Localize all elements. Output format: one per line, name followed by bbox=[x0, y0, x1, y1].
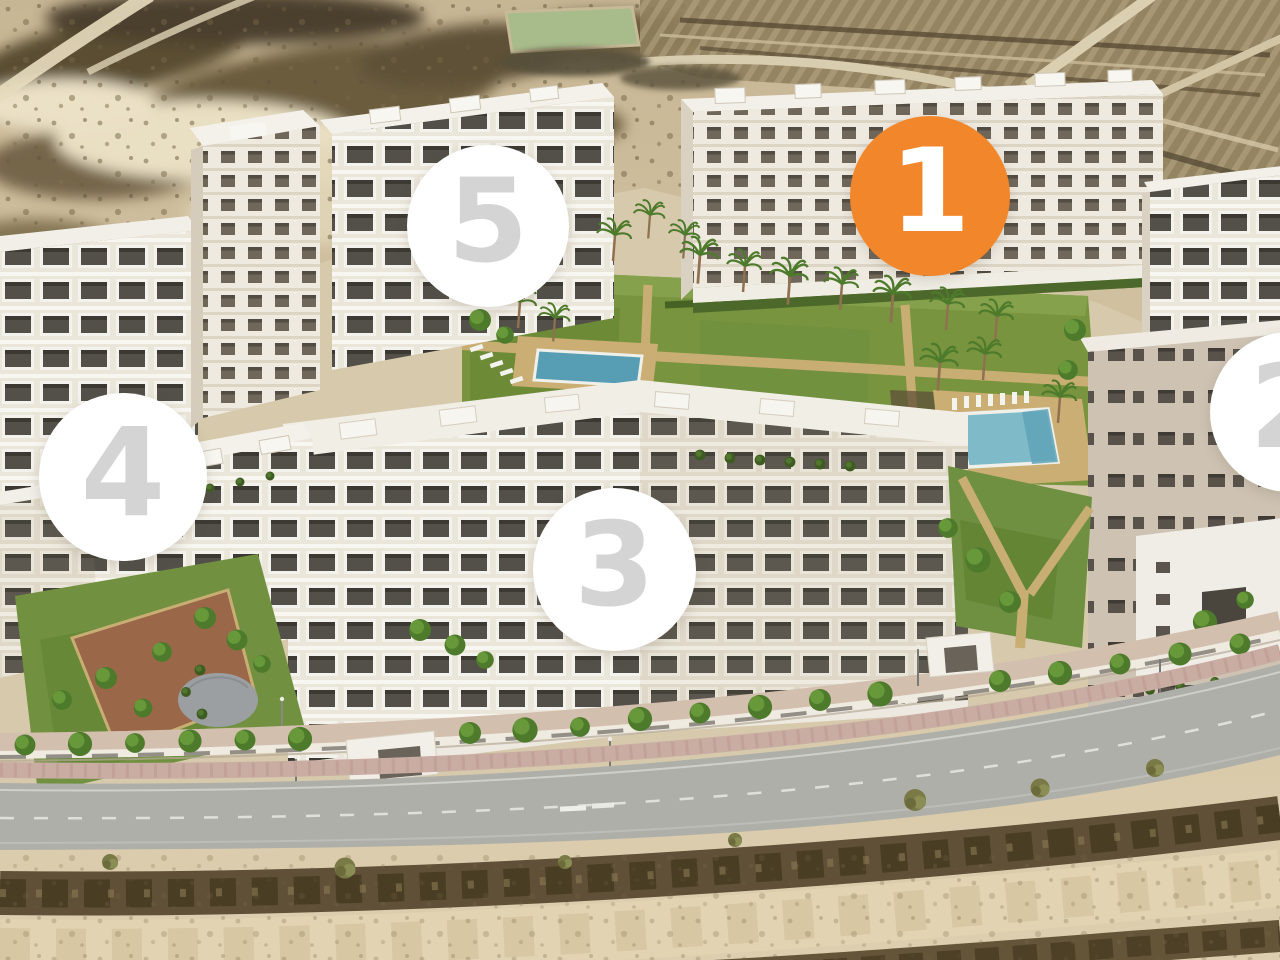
building-marker-2-label: 2 bbox=[1250, 350, 1280, 466]
building-marker-3[interactable]: 3 bbox=[533, 488, 696, 651]
building-marker-4-label: 4 bbox=[81, 412, 166, 534]
building-marker-3-label: 3 bbox=[574, 508, 655, 624]
building-marker-1[interactable]: 1 bbox=[850, 116, 1010, 276]
site-plan-render: 1 2 3 4 5 bbox=[0, 0, 1280, 960]
building-marker-5[interactable]: 5 bbox=[407, 145, 569, 307]
gatehouse-east bbox=[926, 632, 994, 677]
building-marker-5-label: 5 bbox=[448, 164, 529, 280]
building-marker-1-label: 1 bbox=[890, 134, 971, 250]
building-marker-4[interactable]: 4 bbox=[39, 393, 207, 561]
